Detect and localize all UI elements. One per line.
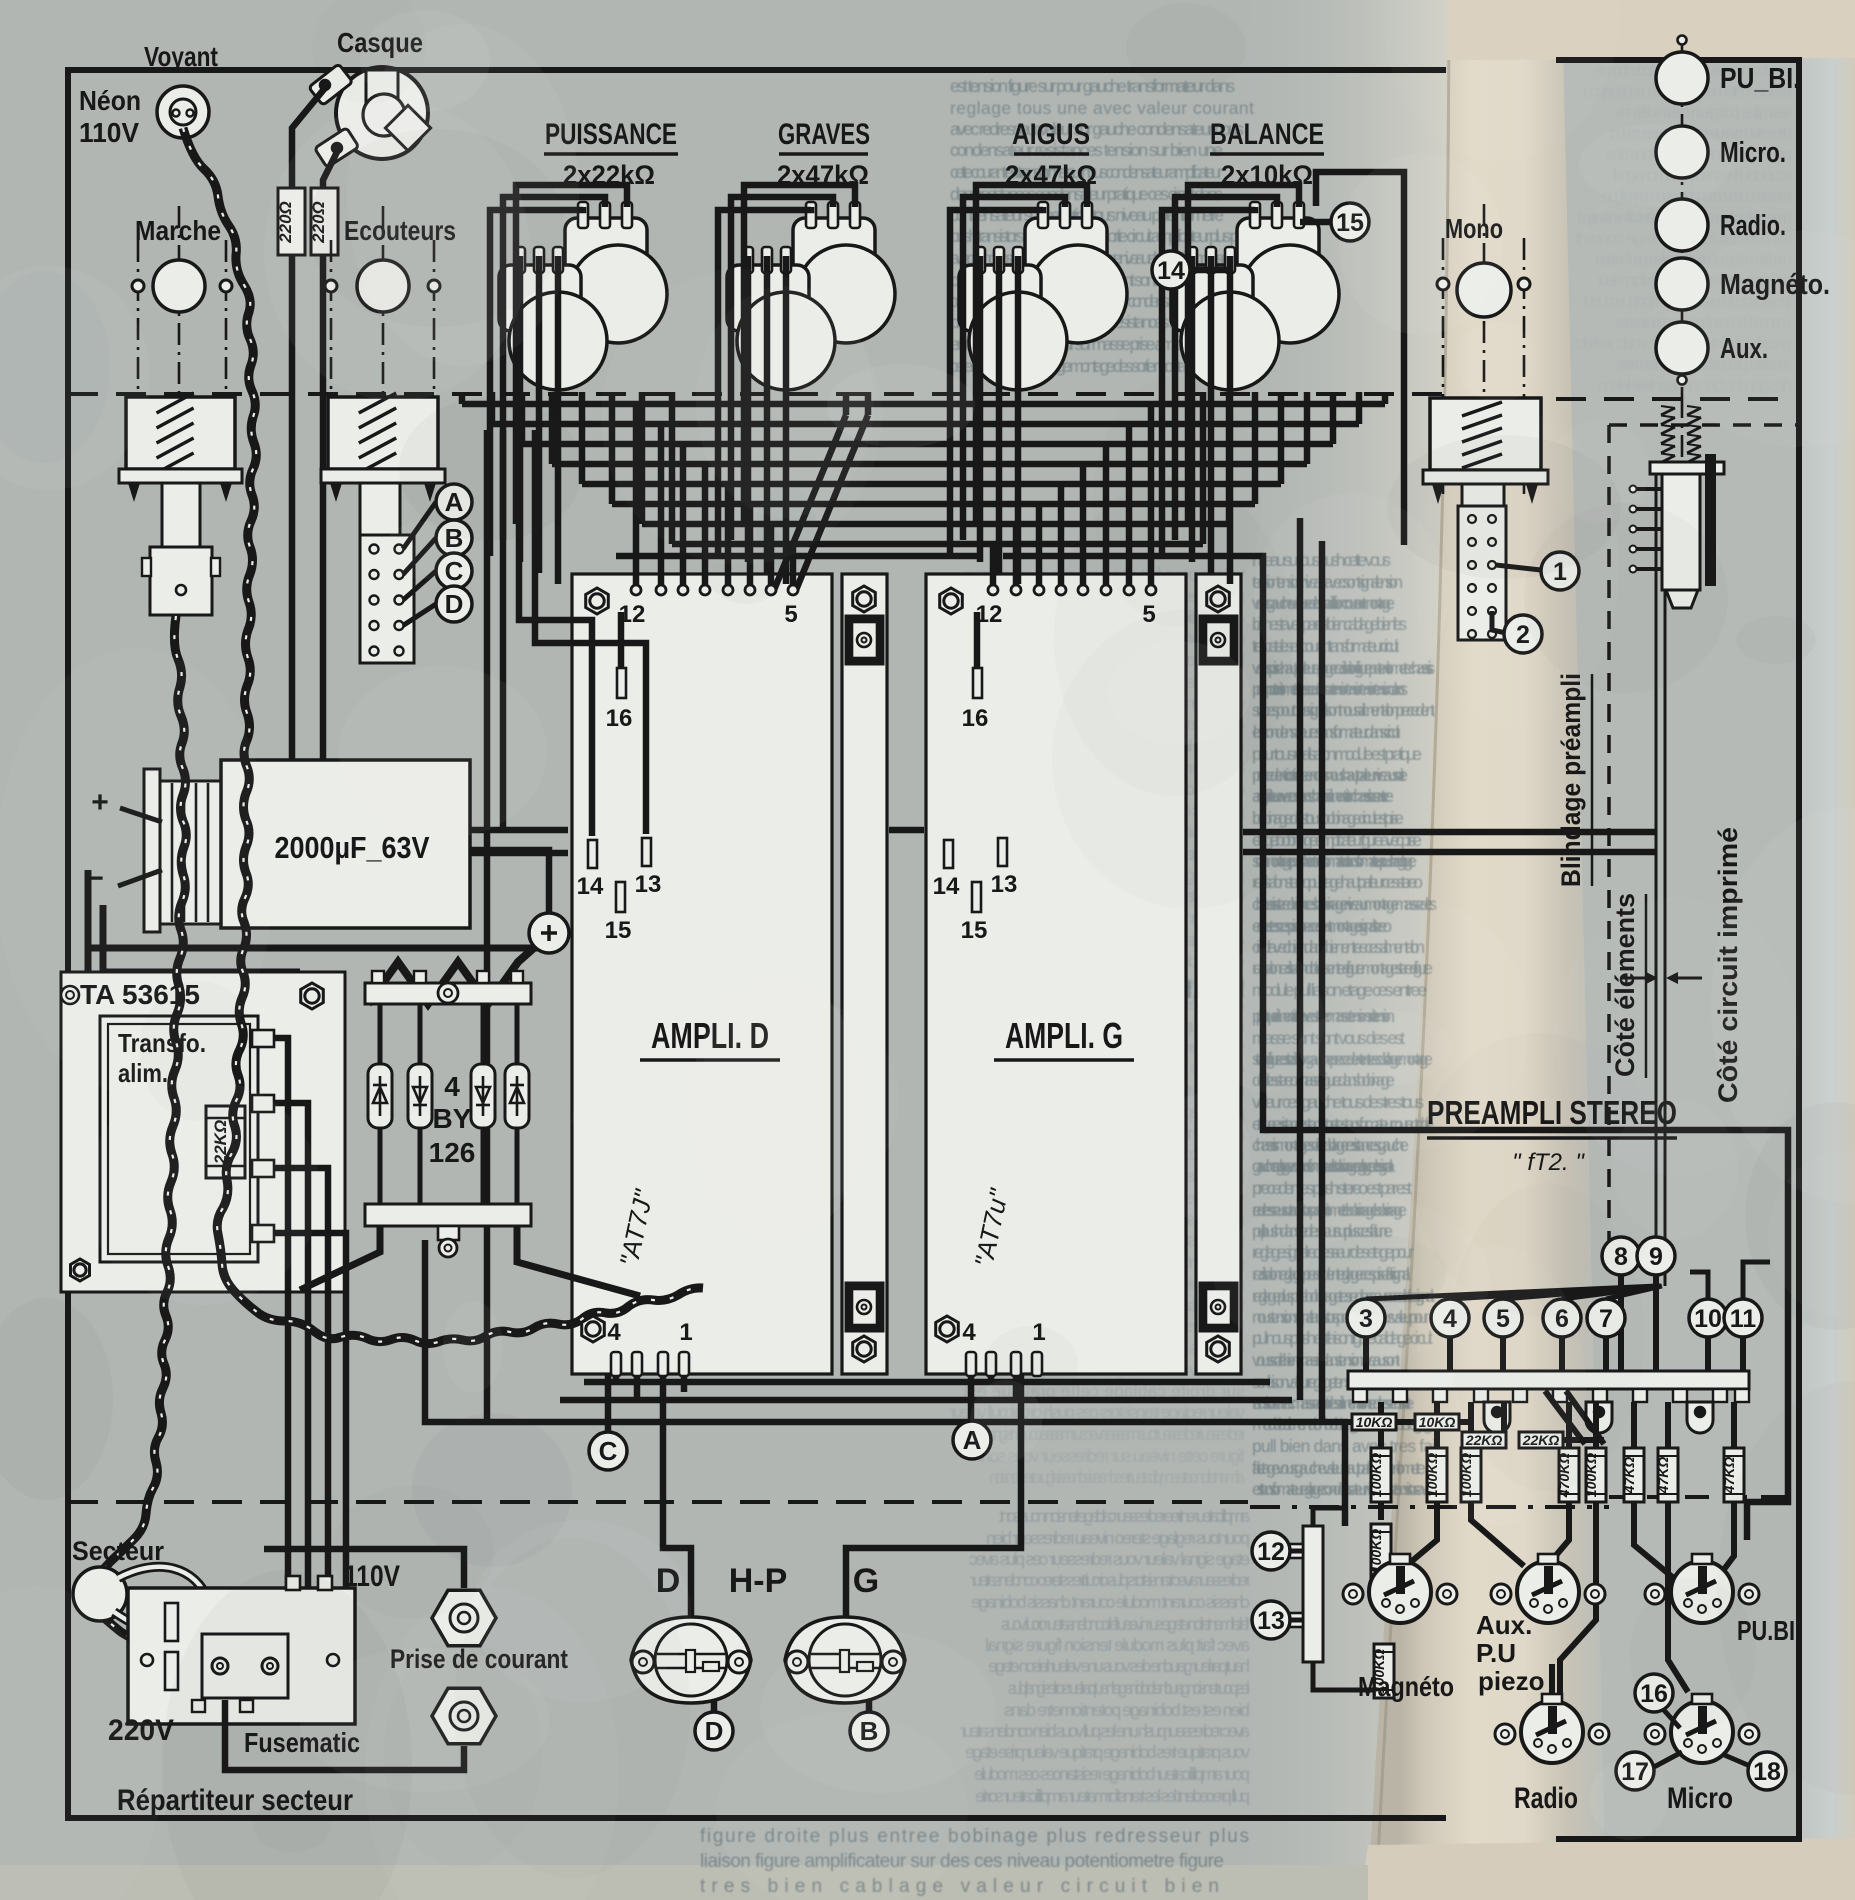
svg-text:13: 13	[1257, 1607, 1285, 1635]
svg-text:16: 16	[962, 705, 989, 732]
svg-text:H-P: H-P	[729, 1562, 788, 1600]
svg-text:2x10kΩ: 2x10kΩ	[1221, 160, 1313, 190]
svg-text:10: 10	[1694, 1305, 1722, 1333]
svg-text:redresseur avec transistors pl: redresseur avec transistors plus circuit…	[970, 1570, 1250, 1590]
svg-text:Radio: Radio	[1514, 1782, 1578, 1815]
svg-text:pour tous reglage stereo nivea: pour tous reglage stereo niveau redresse…	[986, 1528, 1250, 1548]
svg-text:hautparleur gauche des vous un: hautparleur gauche des vous une valeur l…	[988, 1656, 1250, 1676]
svg-text:reglage tous une avec valeur c: reglage tous une avec valeur courant	[950, 98, 1254, 118]
svg-text:1: 1	[679, 1319, 692, 1346]
svg-text:4: 4	[607, 1319, 621, 1346]
svg-text:amplificateur entree redresseu: amplificateur entree redresseur cablage …	[999, 1506, 1250, 1526]
svg-text:100KΩ: 100KΩ	[1368, 1453, 1384, 1497]
svg-text:16: 16	[606, 705, 633, 732]
svg-text:fait etage vous gauche valeur: fait etage vous gauche valeur hautparleu…	[1252, 1458, 1426, 1478]
svg-text:Voyant: Voyant	[144, 41, 218, 72]
svg-text:G: G	[853, 1562, 879, 1600]
svg-text:2x47kΩ: 2x47kΩ	[1005, 160, 1097, 190]
svg-text:alimentation cette amplificate: alimentation cette amplificateur tres ch…	[989, 1467, 1245, 1487]
svg-text:18: 18	[1753, 1758, 1781, 1786]
svg-text:13: 13	[991, 871, 1018, 898]
svg-text:Néon: Néon	[79, 85, 141, 116]
svg-text:15: 15	[605, 917, 632, 944]
svg-text:14: 14	[1157, 257, 1185, 285]
svg-text:9: 9	[1649, 1243, 1663, 1271]
svg-text:avec redresseur push une les p: avec redresseur push une les pull vous b…	[960, 1721, 1250, 1741]
svg-text:Marche: Marche	[135, 215, 221, 246]
svg-text:BALANCE: BALANCE	[1210, 118, 1324, 151]
svg-text:15: 15	[961, 917, 988, 944]
svg-text:etage signal valeur vous redre: etage signal valeur vous redresseur ces …	[969, 1549, 1250, 1569]
svg-text:chassis courant module courant: chassis courant module courant chassis b…	[971, 1592, 1250, 1612]
svg-text:les pour tension gauche bobina: les pour tension gauche bobinage hautpar…	[1008, 1678, 1250, 1698]
svg-text:AMPLI. G: AMPLI. G	[1005, 1015, 1123, 1056]
svg-text:47KΩ: 47KΩ	[1621, 1457, 1637, 1495]
svg-text:PU_BI.: PU_BI.	[1720, 63, 1800, 95]
svg-text:Micro: Micro	[1667, 1782, 1733, 1815]
svg-text:Aux.: Aux.	[1476, 1610, 1532, 1640]
svg-text:12: 12	[619, 601, 646, 628]
svg-text:BY: BY	[433, 1103, 472, 1134]
svg-text:AIGUS: AIGUS	[1012, 118, 1090, 151]
svg-text:P.U: P.U	[1476, 1638, 1516, 1668]
svg-text:D: D	[445, 589, 464, 619]
svg-text:13: 13	[635, 871, 662, 898]
svg-text:2000µF_63V: 2000µF_63V	[275, 830, 430, 865]
svg-text:realisation stereo pull etage: realisation stereo pull etage hautparleu…	[1252, 872, 1423, 892]
svg-text:piezo: piezo	[1478, 1666, 1544, 1696]
svg-text:vous pratique tres bobinage pr: vous pratique tres bobinage pratique val…	[965, 1742, 1250, 1762]
svg-text:D: D	[705, 1716, 724, 1746]
svg-text:Secteur: Secteur	[72, 1536, 164, 1566]
svg-text:GRAVES: GRAVES	[778, 118, 870, 151]
svg-text:avec redresseur valeur sur gau: avec redresseur valeur sur gauche conden…	[950, 119, 1244, 139]
svg-text:fait alimentation etage sur ni: fait alimentation etage sur niveau fait …	[1001, 1614, 1250, 1634]
svg-text:bien est est bobinage potentio: bien est est bobinage potentiometre dans	[1004, 1700, 1250, 1720]
svg-text:14: 14	[577, 873, 604, 900]
svg-text:avec fait plus module tension: avec fait plus module tension figure sig…	[985, 1635, 1250, 1655]
svg-text:2x47kΩ: 2x47kΩ	[777, 160, 869, 190]
svg-text:5: 5	[784, 601, 797, 628]
svg-text:4: 4	[962, 1319, 976, 1346]
svg-text:pull precedent les les transfo: pull precedent les les transformateur am…	[975, 1786, 1250, 1806]
svg-text:ces amplificateur push gauche: ces amplificateur push gauche ces bien s…	[1616, 102, 1792, 122]
svg-text:10KΩ: 10KΩ	[1356, 1414, 1393, 1430]
svg-text:12: 12	[976, 601, 1003, 628]
svg-text:12: 12	[1257, 1538, 1285, 1566]
svg-text:pour amplificateur bobinage re: pour amplificateur bobinage resistances …	[974, 1764, 1250, 1784]
svg-text:126: 126	[429, 1137, 476, 1168]
svg-text:Magnéto: Magnéto	[1358, 1671, 1454, 1702]
svg-text:precedent les push stereo est: precedent les push stereo est par est	[1252, 1178, 1412, 1198]
svg-text:110V: 110V	[79, 117, 139, 148]
svg-text:14: 14	[933, 873, 960, 900]
svg-text:11: 11	[1730, 1305, 1757, 1333]
svg-text:47KΩ: 47KΩ	[1655, 1457, 1671, 1495]
svg-text:C: C	[599, 1436, 618, 1466]
svg-text:4: 4	[444, 1071, 460, 1102]
